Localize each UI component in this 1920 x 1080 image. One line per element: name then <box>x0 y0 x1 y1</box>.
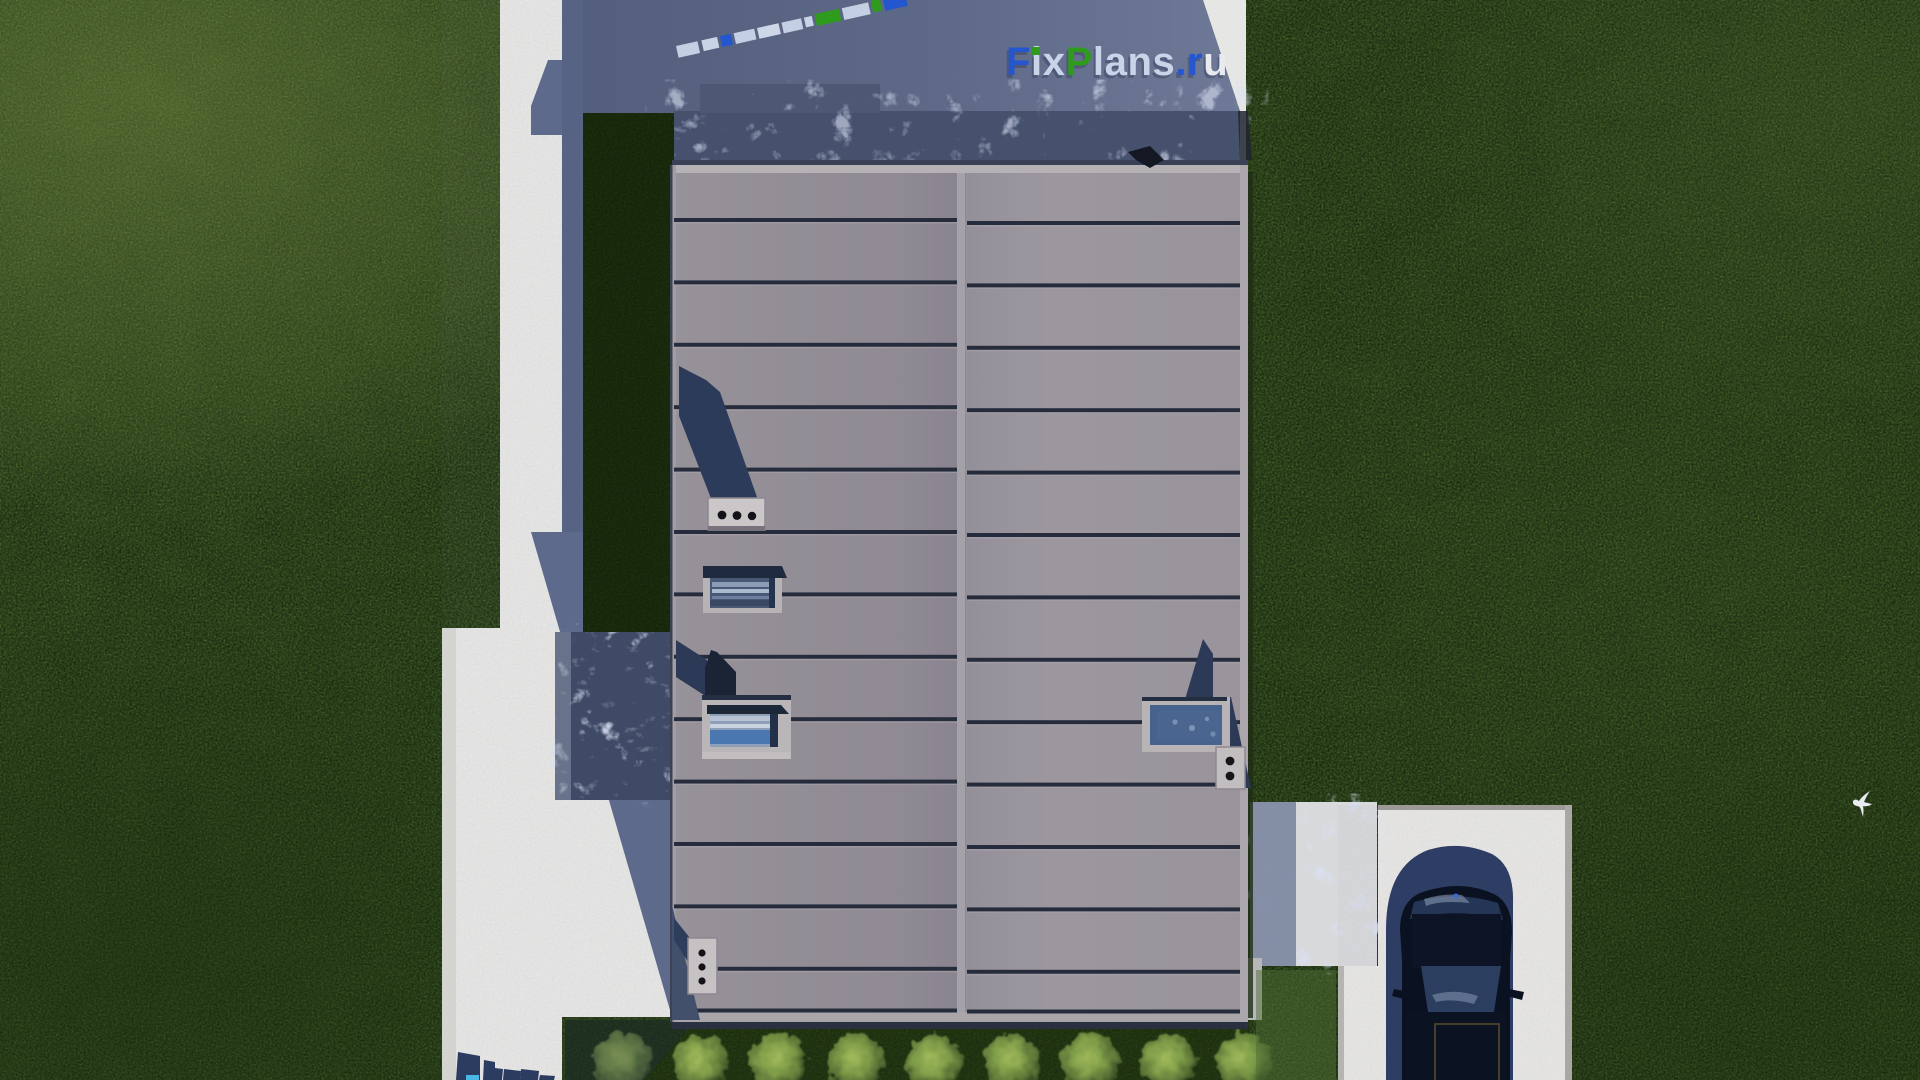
svg-text:FixPlans.ru: FixPlans.ru <box>1006 40 1228 84</box>
